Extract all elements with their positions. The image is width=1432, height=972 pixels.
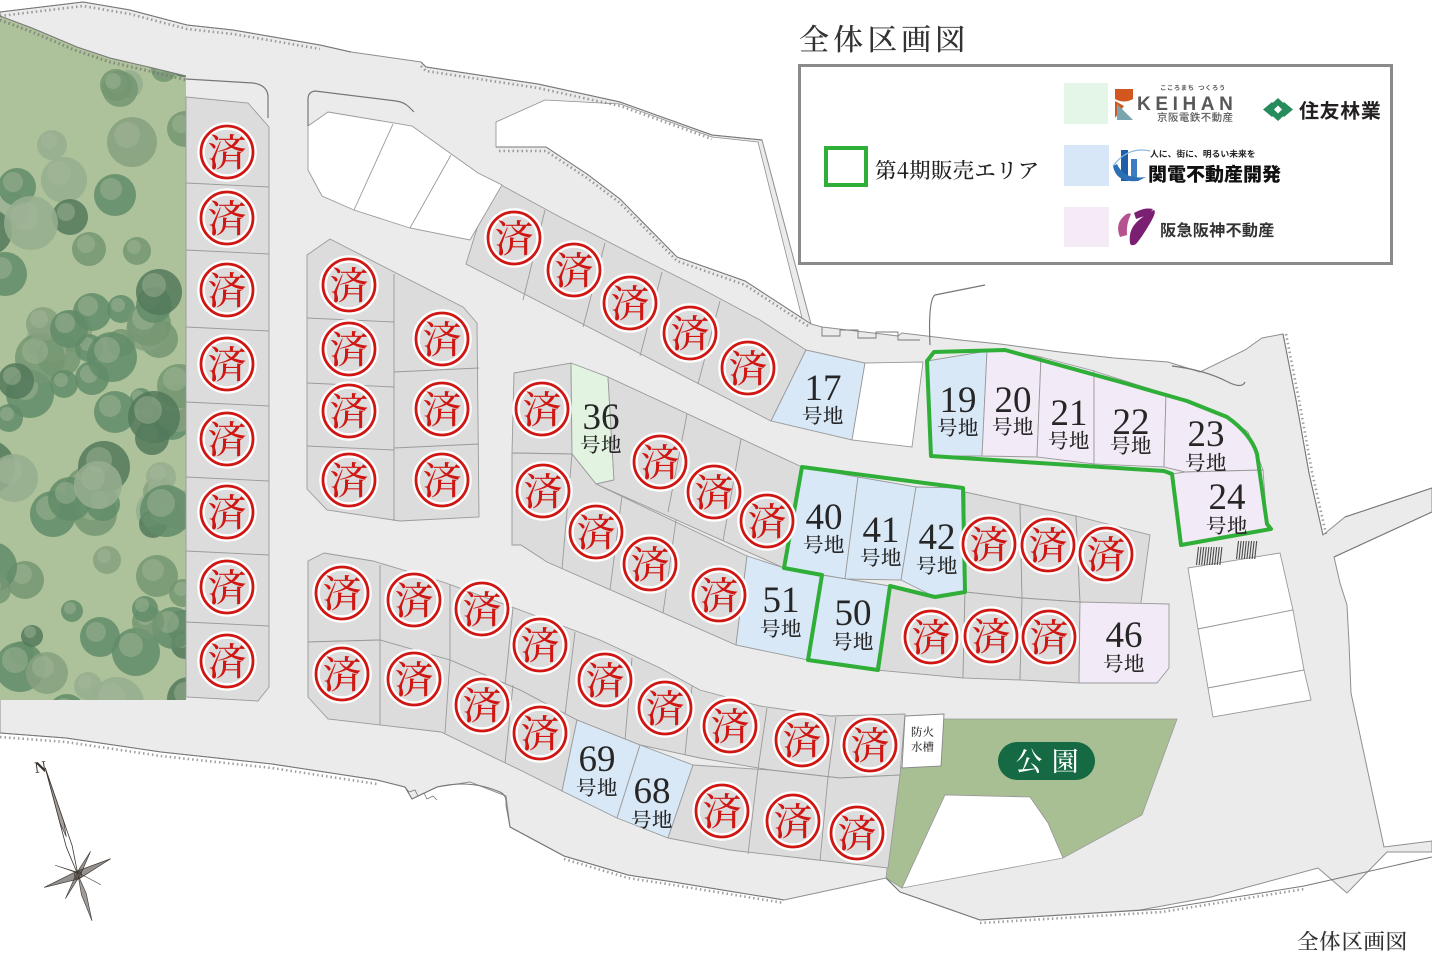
- svg-text:41: 41: [863, 510, 900, 551]
- svg-text:21: 21: [1051, 393, 1088, 434]
- svg-text:20: 20: [995, 380, 1032, 421]
- svg-text:23: 23: [1188, 414, 1225, 455]
- svg-text:KEIHAN: KEIHAN: [1137, 94, 1237, 115]
- svg-text:36: 36: [583, 397, 620, 438]
- svg-text:42: 42: [919, 517, 956, 558]
- svg-text:68: 68: [634, 771, 671, 812]
- svg-text:19: 19: [940, 380, 977, 421]
- svg-text:46: 46: [1106, 615, 1143, 656]
- svg-text:51: 51: [763, 580, 800, 621]
- svg-text:24: 24: [1209, 477, 1246, 518]
- svg-text:50: 50: [835, 593, 872, 634]
- svg-text:40: 40: [806, 497, 843, 538]
- svg-text:69: 69: [579, 739, 616, 780]
- svg-text:17: 17: [805, 368, 842, 409]
